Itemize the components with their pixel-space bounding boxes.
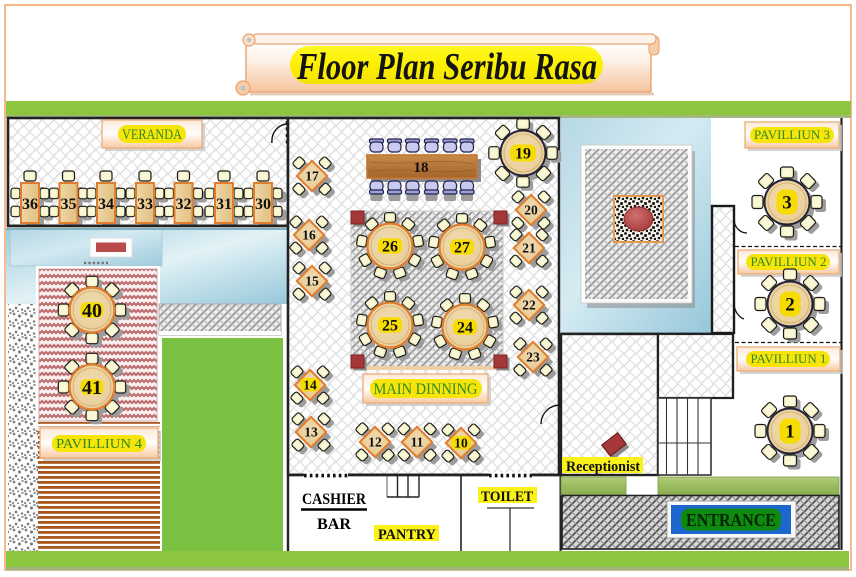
svg-text:CASHIER: CASHIER [302, 491, 366, 508]
svg-text:15: 15 [305, 274, 319, 289]
svg-text:13: 13 [304, 425, 318, 440]
svg-text:1: 1 [785, 422, 795, 443]
svg-text:32: 32 [176, 196, 192, 213]
svg-text:PAVILLIUN 1: PAVILLIUN 1 [751, 351, 827, 366]
svg-text:TOILET: TOILET [481, 489, 533, 505]
svg-text:3: 3 [782, 193, 792, 214]
svg-text:27: 27 [454, 239, 470, 256]
svg-text:19: 19 [515, 145, 531, 162]
svg-text:18: 18 [414, 160, 429, 176]
svg-text:VERANDA: VERANDA [122, 127, 182, 143]
svg-text:40: 40 [82, 300, 102, 322]
svg-text:33: 33 [137, 196, 153, 213]
svg-text:31: 31 [216, 196, 232, 213]
svg-text:12: 12 [368, 435, 382, 450]
svg-text:35: 35 [61, 196, 77, 213]
svg-text:BAR: BAR [317, 516, 351, 533]
svg-text:PAVILLIUN 3: PAVILLIUN 3 [754, 127, 830, 142]
svg-text:20: 20 [524, 203, 538, 218]
svg-text:41: 41 [82, 377, 102, 399]
svg-text:36: 36 [22, 196, 38, 213]
svg-text:11: 11 [411, 435, 424, 450]
svg-text:17: 17 [305, 169, 319, 184]
svg-text:26: 26 [382, 238, 398, 255]
svg-text:PANTRY: PANTRY [378, 527, 436, 543]
svg-text:14: 14 [303, 378, 317, 393]
svg-text:10: 10 [454, 436, 468, 451]
svg-text:2: 2 [785, 295, 795, 316]
svg-text:21: 21 [522, 241, 536, 256]
svg-text:23: 23 [526, 350, 540, 365]
svg-text:PAVILLIUN 4: PAVILLIUN 4 [56, 437, 142, 452]
svg-text:22: 22 [522, 298, 536, 313]
svg-text:30: 30 [255, 196, 271, 213]
svg-text:MAIN DINNING: MAIN DINNING [374, 381, 478, 398]
svg-text:24: 24 [457, 319, 473, 336]
svg-text:PAVILLIUN 2: PAVILLIUN 2 [751, 254, 827, 269]
svg-text:Floor Plan Seribu Rasa: Floor Plan Seribu Rasa [296, 46, 597, 88]
svg-text:16: 16 [302, 228, 316, 243]
svg-text:Receptionist: Receptionist [566, 459, 640, 475]
svg-text:34: 34 [98, 196, 114, 213]
svg-text:ENTRANCE: ENTRANCE [686, 510, 776, 530]
svg-text:25: 25 [382, 317, 398, 334]
